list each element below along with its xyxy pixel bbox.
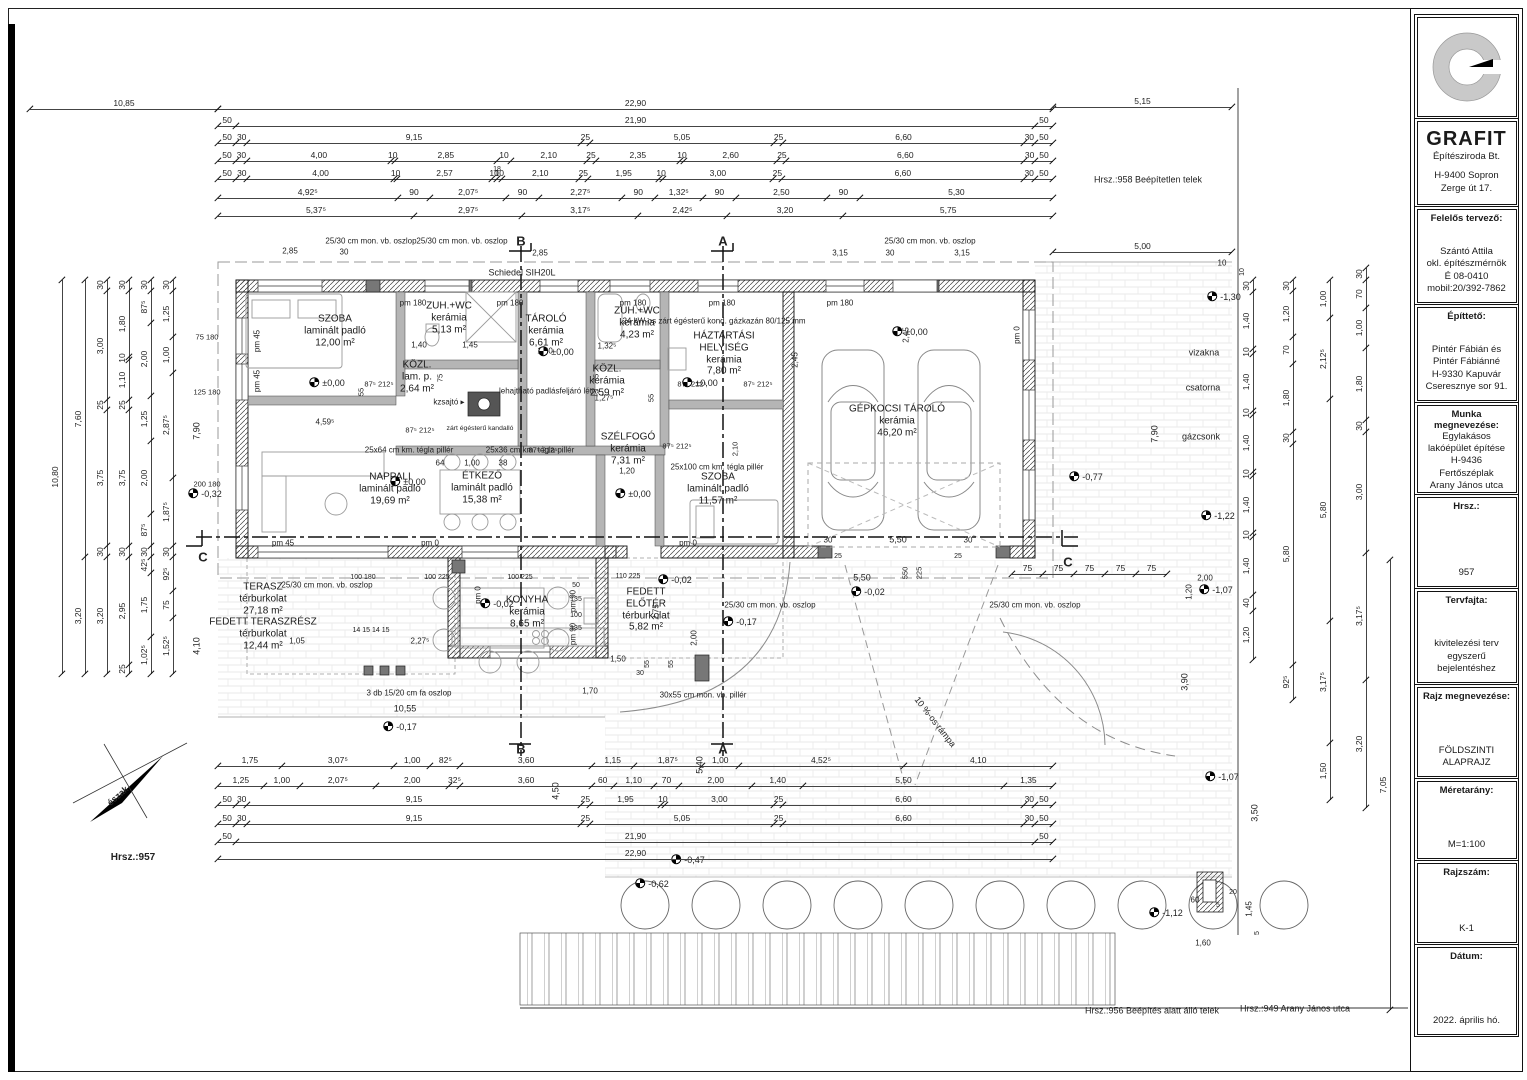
dimension-line <box>218 109 1053 110</box>
dimension-value: 1,35 <box>1020 775 1037 785</box>
dimension-value: 1,02⁵ <box>139 645 149 665</box>
dimension-value: 2,57 <box>436 168 453 178</box>
plan-annotation: 100 225 <box>507 574 532 582</box>
plan-annotation: 135 <box>570 596 582 604</box>
titleblock-datum: Dátum:2022. április hó. <box>1414 944 1519 1037</box>
dimension-value: 1,87⁵ <box>658 755 678 765</box>
dimension-value: 5,80 <box>1318 502 1328 519</box>
plan-annotation: 30 <box>964 535 973 544</box>
dimension-value: 30 <box>1025 132 1034 142</box>
dimension-value: 50 <box>1039 813 1048 823</box>
dimension-tick <box>1362 804 1369 811</box>
dimension-value: 4,92⁵ <box>298 187 318 197</box>
dimension-value: 2,07⁵ <box>328 775 348 785</box>
plan-annotation: 125 180 <box>193 389 220 398</box>
dimension-value: 42⁵ <box>139 559 149 572</box>
plan-annotation: vizakna <box>1189 348 1220 359</box>
dimension-value: 1,00 <box>404 755 421 765</box>
company-address-line1: H-9400 Sopron <box>1418 170 1516 183</box>
dimension-value: 75 <box>1085 563 1094 573</box>
dimension-value: 5,30 <box>948 187 965 197</box>
room-label: FEDETT ELŐTÉR térburkolat 5,82 m² <box>622 586 669 633</box>
plan-annotation: pm 180 <box>400 298 427 307</box>
dimension-value: 21,90 <box>625 831 646 841</box>
dimension-line <box>1390 560 1391 1010</box>
titleblock-epitteto-header: Építtető: <box>1418 308 1516 322</box>
titleblock-rajz-megnevezese: Rajz megnevezése:FÖLDSZINTI ALAPRAJZ <box>1414 684 1519 779</box>
dimension-value: 22,90 <box>625 848 646 858</box>
dimension-value: 3,20 <box>95 607 105 624</box>
dimension-value: 10 <box>499 150 508 160</box>
plan-annotation: 3,90 <box>1180 673 1191 691</box>
dimension-value: 50 <box>1039 794 1048 804</box>
dimension-line <box>1053 107 1232 108</box>
dimension-value: 30 <box>161 547 171 556</box>
plan-annotation: 25/30 cm mon. vb. oszlop <box>884 236 975 245</box>
dimension-value: 1,95 <box>617 794 634 804</box>
dimension-value: 30 <box>237 150 246 160</box>
level-marker: -0,62 <box>635 878 669 890</box>
dimension-value: 30 <box>161 281 171 290</box>
room-label: SZÉLFOGÓ kerámia 7,31 m² <box>601 431 655 466</box>
plan-annotation: 30x55 cm mon. vb. pillér <box>660 690 747 699</box>
plan-annotation: 1,00 <box>464 458 480 467</box>
company-address-line2: Zerge út 17. <box>1418 183 1516 196</box>
dimension-value: 50 <box>222 813 231 823</box>
plan-annotation: 50 <box>572 582 580 590</box>
plan-annotation: pm 180 <box>620 298 647 307</box>
dimension-tick <box>1049 194 1056 201</box>
titleblock-datum-value: 2022. április hó. <box>1418 1015 1516 1033</box>
dimension-line <box>1012 574 1167 575</box>
dimension-value: 25 <box>117 400 127 409</box>
dimension-value: 30 <box>95 547 105 556</box>
dimension-value: 1,80 <box>1281 390 1291 407</box>
dimension-value: 50 <box>222 831 231 841</box>
dimension-value: 30 <box>237 813 246 823</box>
level-marker: ±0,00 <box>538 346 573 358</box>
dimension-tick <box>81 670 88 677</box>
dimension-line <box>1330 280 1331 800</box>
level-marker: ±0,00 <box>615 488 650 500</box>
dimension-value: 60 <box>598 775 607 785</box>
dimension-value: 2,60 <box>722 150 739 160</box>
plan-annotation: Schiedel SIH20L <box>488 268 555 279</box>
plan-annotation: 60 <box>1191 895 1200 904</box>
plan-annotation: pm 0 <box>1012 326 1021 344</box>
dimension-value: 30 <box>1281 281 1291 290</box>
titleblock-tervfajta-header: Tervfajta: <box>1418 592 1516 606</box>
plan-labels-layer: SZOBA laminált padló 12,00 m²ZUH.+WC ker… <box>0 0 1527 1080</box>
dimension-value: 3,00 <box>95 337 105 354</box>
dimension-value: 2,00 <box>139 470 149 487</box>
plan-annotation: 3,50 <box>1250 804 1261 822</box>
plan-annotation: 10,55 <box>394 704 417 715</box>
plan-annotation: 30 <box>886 248 895 257</box>
dimension-value: 2,00 <box>707 775 724 785</box>
plan-annotation: 4,59⁵ <box>316 417 335 426</box>
plan-annotation: kzsajtó ▸ <box>433 397 464 406</box>
room-label: KÖZL. lam. p. 2,64 m² <box>400 359 434 394</box>
dimension-tick <box>147 670 154 677</box>
room-label: ZUH.+WC kerámia 5,13 m² <box>426 300 472 335</box>
plan-annotation: 87⁵ 212⁵ <box>405 427 434 436</box>
dimension-value: 10 <box>388 150 397 160</box>
drawing-sheet: SZOBA laminált padló 12,00 m²ZUH.+WC ker… <box>0 0 1527 1080</box>
dimension-value: 1,75 <box>139 596 149 613</box>
dimension-tick <box>1289 696 1296 703</box>
grafit-logo-icon <box>1426 26 1508 108</box>
level-marker: -1,22 <box>1201 510 1235 522</box>
dimension-value: 2,07⁵ <box>458 187 478 197</box>
room-label: TÁROLÓ kerámia 6,61 m² <box>525 313 566 348</box>
dimension-value: 2,35 <box>630 150 647 160</box>
dimension-value: 2,10 <box>540 150 557 160</box>
dimension-value: 25 <box>581 794 590 804</box>
dimension-value: 25 <box>117 665 127 674</box>
plan-annotation: 55 <box>648 394 657 402</box>
dimension-tick <box>1049 139 1056 146</box>
dimension-value: 87⁵ <box>139 524 149 537</box>
dimension-value: 1,00 <box>1354 320 1364 337</box>
dimension-line <box>85 280 86 674</box>
dimension-value: 3,20 <box>777 205 794 215</box>
plan-annotation: 25/30 cm mon. vb. oszlop <box>724 600 815 609</box>
plan-annotation: B <box>516 233 525 248</box>
plan-annotation: 10 %-os rámpa <box>912 695 958 750</box>
dimension-value: 70 <box>1354 289 1364 298</box>
plan-annotation: 1,70 <box>582 686 598 695</box>
level-marker: -0,17 <box>383 721 417 733</box>
dimension-value: 75 <box>1054 563 1063 573</box>
dimension-value: 50 <box>222 115 231 125</box>
plan-annotation: 2,10 <box>732 442 741 457</box>
dimension-value: 3,75 <box>95 470 105 487</box>
plan-annotation: 20 <box>1229 889 1237 897</box>
dimension-value: 1,25 <box>233 775 250 785</box>
dimension-value: 25 <box>773 168 782 178</box>
plan-annotation: 2,00 <box>689 630 698 646</box>
dimension-tick <box>1049 801 1056 808</box>
dimension-line <box>218 766 1053 767</box>
dimension-tick <box>1049 175 1056 182</box>
titleblock-meretarany: Méretarány:M=1:100 <box>1414 778 1519 861</box>
dimension-tick <box>1049 782 1056 789</box>
dimension-value: 1,00 <box>712 755 729 765</box>
dimension-tick <box>1228 248 1235 255</box>
dimension-tick <box>58 670 65 677</box>
plan-annotation: 110 225 <box>616 573 641 581</box>
dimension-tick <box>1326 796 1333 803</box>
dimension-value: 30 <box>1025 813 1034 823</box>
plan-annotation: 64 <box>436 458 445 467</box>
plan-annotation: 10 <box>1218 258 1227 267</box>
plan-annotation: 25/30 cm mon. vb. oszlop <box>325 236 416 245</box>
plan-annotation: 1,20 <box>619 466 635 475</box>
titleblock-tervfajta-value: kivitelezési terv egyszerű bejelentéshez <box>1418 638 1516 681</box>
level-marker: ±0,00 <box>682 377 717 389</box>
plan-annotation: 55 <box>358 388 367 396</box>
dimension-line <box>218 805 1053 806</box>
dimension-value: 3,20 <box>1354 736 1364 753</box>
dimension-value: 1,25 <box>161 305 171 322</box>
dimension-value: 70 <box>1281 346 1291 355</box>
plan-annotation: gázcsonk <box>1182 432 1220 443</box>
plan-annotation: 1,50 <box>610 654 626 663</box>
plan-annotation: pm 180 <box>497 298 524 307</box>
plan-annotation: 5,50 <box>889 535 907 546</box>
dimension-line <box>129 280 130 674</box>
dimension-value: 9,15 <box>406 132 423 142</box>
dimension-value: 32⁵ <box>448 775 461 785</box>
plan-annotation: pm 180 <box>709 298 736 307</box>
plan-annotation: 87⁵ 212⁵ <box>662 443 691 452</box>
plan-annotation: 30 <box>340 247 349 256</box>
dimension-line <box>62 280 63 674</box>
dimension-value: 5,50 <box>895 775 912 785</box>
dimension-value: 9,15 <box>406 813 423 823</box>
dimension-value: 1,40 <box>1241 558 1251 575</box>
dimension-value: 3,17⁵ <box>1318 672 1328 692</box>
dimension-value: 75 <box>1023 563 1032 573</box>
dimension-value: 5,15 <box>1134 96 1151 106</box>
dimension-value: 90 <box>634 187 643 197</box>
level-marker: -0,02 <box>658 574 692 586</box>
level-marker: -0,17 <box>723 616 757 628</box>
titleblock-munka-megnevezese-value: Egylakásos lakóépület építése H-9436 Fer… <box>1418 431 1516 499</box>
plan-annotation: pm 180 <box>827 298 854 307</box>
plan-annotation: 10 <box>1239 268 1247 276</box>
dimension-value: 2,97⁵ <box>458 205 478 215</box>
dimension-value: 2,27⁵ <box>570 187 590 197</box>
dimension-value: 1,80 <box>1354 376 1364 393</box>
dimension-value: 3,60 <box>518 775 535 785</box>
dimension-value: 25 <box>774 132 783 142</box>
dimension-value: 2,12⁵ <box>1318 349 1328 369</box>
dimension-value: 50 <box>1039 132 1048 142</box>
titleblock-epitteto: Építtető:Pintér Fábián és Pintér Fábiánn… <box>1414 304 1519 403</box>
dimension-value: 30 <box>1025 794 1034 804</box>
plan-annotation: pm 45 <box>252 370 261 392</box>
plan-annotation: 14 15 14 15 <box>353 627 390 635</box>
plan-annotation: 75 <box>437 374 446 382</box>
plan-annotation: 135 <box>570 625 582 633</box>
dimension-value: 2,50 <box>773 187 790 197</box>
dimension-value: 30 <box>1025 150 1034 160</box>
dimension-value: 25 <box>95 400 105 409</box>
titleblock-epitteto-value: Pintér Fábián és Pintér Fábiánné H-9330 … <box>1418 344 1516 399</box>
level-marker: ±0,00 <box>390 476 425 488</box>
plan-annotation: Hrsz.:958 Beépítetlen telek <box>1094 175 1202 186</box>
plan-annotation: 24 kW-os zárt égésterű kond. gázkazán 80… <box>622 316 805 325</box>
dimension-value: 2,00 <box>139 351 149 368</box>
dimension-value: 1,52⁵ <box>161 636 171 656</box>
plan-annotation: 1,60 <box>1195 938 1211 947</box>
dimension-value: 30 <box>1281 433 1291 442</box>
dimension-value: 1,00 <box>161 347 171 364</box>
plan-annotation: 55 <box>644 660 652 668</box>
titleblock-felelos-tervezo-value: Szántó Attila okl. építészmérnök É 08-04… <box>1418 246 1516 301</box>
dimension-value: 30 <box>139 547 149 556</box>
dimension-value: 30 <box>237 168 246 178</box>
dimension-value: 50 <box>1039 115 1048 125</box>
dimension-value: 10,85 <box>113 98 134 108</box>
dimension-value: 75 <box>1116 563 1125 573</box>
dimension-value: 3,20 <box>73 607 83 624</box>
level-marker: -1,12 <box>1149 907 1183 919</box>
room-label: SZOBA laminált padló 12,00 m² <box>304 313 366 348</box>
dimension-value: 3,75 <box>117 470 127 487</box>
dimension-value: 1,40 <box>1241 313 1251 330</box>
dimension-tick <box>1386 1006 1393 1013</box>
plan-annotation: 7,90 <box>192 422 203 440</box>
dimension-value: 1,15 <box>604 755 621 765</box>
plan-annotation: 2,00 <box>1197 573 1213 582</box>
dimension-value: 1,80 <box>117 315 127 332</box>
dimension-value: 90 <box>839 187 848 197</box>
dimension-value: 1,20 <box>1281 306 1291 323</box>
titleblock-rajz-megnevezese-value: FÖLDSZINTI ALAPRAJZ <box>1418 745 1516 776</box>
room-label: TERASZ térburkolat 27,18 m² <box>239 581 286 616</box>
dimension-value: 10 <box>1241 469 1251 478</box>
plan-annotation: csatorna <box>1186 383 1221 394</box>
dimension-value: 7,60 <box>73 410 83 427</box>
dimension-value: 3,00 <box>710 168 727 178</box>
level-marker: ±0,00 <box>309 377 344 389</box>
plan-annotation: 25x64 cm km. tégla pillér <box>365 445 453 454</box>
plan-annotation: 1,20 <box>1184 584 1193 600</box>
dimension-value: 4,00 <box>312 168 329 178</box>
dimension-value: 10 <box>656 168 665 178</box>
plan-annotation: 225 <box>916 567 925 580</box>
plan-annotation: 25x100 cm km. tégla pillér <box>671 462 764 471</box>
plan-annotation: 2,75 <box>651 604 660 620</box>
dimension-value: 6,60 <box>895 132 912 142</box>
dimension-line <box>107 280 108 674</box>
dimension-value: 5,05 <box>674 132 691 142</box>
titleblock-felelos-tervezo: Felelős tervező:Szántó Attila okl. építé… <box>1414 206 1519 305</box>
plan-annotation: 100 180 <box>350 574 375 582</box>
dimension-value: 22,90 <box>625 98 646 108</box>
dimension-value: 1,95 <box>615 168 632 178</box>
level-marker: -1,07 <box>1199 584 1233 596</box>
dimension-line <box>218 824 1053 825</box>
dimension-value: 4,00 <box>311 150 328 160</box>
dimension-value: 1,32⁵ <box>669 187 689 197</box>
level-marker: -0,77 <box>1069 471 1103 483</box>
dimension-value: 90 <box>409 187 418 197</box>
titleblock-hrsz-header: Hrsz.: <box>1418 498 1516 512</box>
dimension-value: 1,00 <box>1318 291 1328 308</box>
titleblock-hrsz-value: 957 <box>1418 567 1516 585</box>
dimension-value: 1,10 <box>625 775 642 785</box>
dimension-tick <box>1049 122 1056 129</box>
plan-annotation: 75 180 <box>196 334 219 343</box>
dimension-value: 7,05 <box>1378 777 1388 794</box>
dimension-value: 3,07⁵ <box>328 755 348 765</box>
plan-annotation: 100 225 <box>424 574 449 582</box>
dimension-tick <box>1163 570 1170 577</box>
dimension-value: 1,40 <box>1241 374 1251 391</box>
room-label: FEDETT TERASZRÉSZ térburkolat 12,44 m² <box>209 616 316 651</box>
room-label: SZOBA laminált padló 11,57 m² <box>687 471 749 506</box>
dimension-value: 87⁵ <box>139 300 149 313</box>
room-label: GÉPKOCSI TÁROLÓ kerámia 46,20 m² <box>849 403 945 438</box>
titleblock-rajzszam-header: Rajzszám: <box>1418 864 1516 878</box>
dimension-value: 3,00 <box>711 794 728 804</box>
titleblock-logo <box>1414 14 1519 119</box>
plan-annotation: 2,85 <box>282 246 298 255</box>
dimension-value: 6,60 <box>895 168 912 178</box>
titleblock-rajzszam: Rajzszám:K-1 <box>1414 860 1519 945</box>
dimension-value: 25 <box>579 168 588 178</box>
dimension-line <box>218 143 1053 144</box>
titleblock-felelos-tervezo-header: Felelős tervező: <box>1418 210 1516 224</box>
dimension-value: 10,80 <box>50 466 60 487</box>
dimension-value: 5,75 <box>940 205 957 215</box>
level-marker: -1,30 <box>1207 291 1241 303</box>
plan-annotation: 7,90 <box>1150 425 1161 443</box>
plan-annotation: 100 <box>570 612 582 620</box>
plan-annotation: 5 <box>1216 902 1220 910</box>
dimension-tick <box>1049 762 1056 769</box>
dimension-value: 75 <box>161 600 171 609</box>
plan-annotation: 25x36 cm km. tégla pillér <box>486 445 574 454</box>
dimension-line <box>218 126 1053 127</box>
titleblock-hrsz: Hrsz.:957 <box>1414 494 1519 589</box>
plan-annotation: 1,40 <box>411 340 427 349</box>
dimension-value: 25 <box>774 813 783 823</box>
dimension-value: 10 <box>677 150 686 160</box>
titleblock-rajz-megnevezese-header: Rajz megnevezése: <box>1418 688 1516 702</box>
dimension-value: 25 <box>774 794 783 804</box>
plan-annotation: 25 <box>954 553 962 561</box>
dimension-line <box>218 198 1053 199</box>
dimension-value: 10 <box>495 168 504 178</box>
dimension-tick <box>1228 103 1235 110</box>
plan-annotation: 1,45 <box>462 340 478 349</box>
dimension-value: 2,10 <box>532 168 549 178</box>
dimension-value: 30 <box>139 281 149 290</box>
dimension-value: 10 <box>1241 531 1251 540</box>
dimension-value: 50 <box>1039 831 1048 841</box>
dimension-value: 25 <box>581 132 590 142</box>
dimension-value: 5,37⁵ <box>306 205 326 215</box>
plan-annotation: Hrsz.:956 Beépítés alatt álló telek <box>1085 1006 1219 1017</box>
dimension-value: 6,60 <box>897 150 914 160</box>
dimension-value: 9,15 <box>406 794 423 804</box>
dimension-value: 10 <box>117 354 127 363</box>
level-marker: ±0,00 <box>892 326 927 338</box>
dimension-value: 4,10 <box>970 755 987 765</box>
dimension-value: 3,60 <box>518 755 535 765</box>
dimension-value: 30 <box>117 547 127 556</box>
plan-annotation: pm 0 <box>679 538 697 547</box>
level-marker: -0,02 <box>851 586 885 598</box>
dimension-value: 25 <box>777 150 786 160</box>
dimension-value: 6,60 <box>895 813 912 823</box>
dimension-tick <box>103 670 110 677</box>
room-label: ÉTKEZŐ laminált padló 15,38 m² <box>451 470 513 505</box>
dimension-line <box>30 109 218 110</box>
dimension-line <box>1366 268 1367 808</box>
titleblock-company: GRAFIT Építésziroda Bt. H-9400 Sopron Ze… <box>1414 118 1519 207</box>
dimension-value: 2,85 <box>438 150 455 160</box>
plan-annotation: 2,27⁵ <box>411 636 430 645</box>
plan-annotation: 3 db 15/20 cm fa oszlop <box>367 688 452 697</box>
dimension-value: 2,87⁵ <box>161 415 171 435</box>
plan-annotation: 55 <box>668 660 676 668</box>
